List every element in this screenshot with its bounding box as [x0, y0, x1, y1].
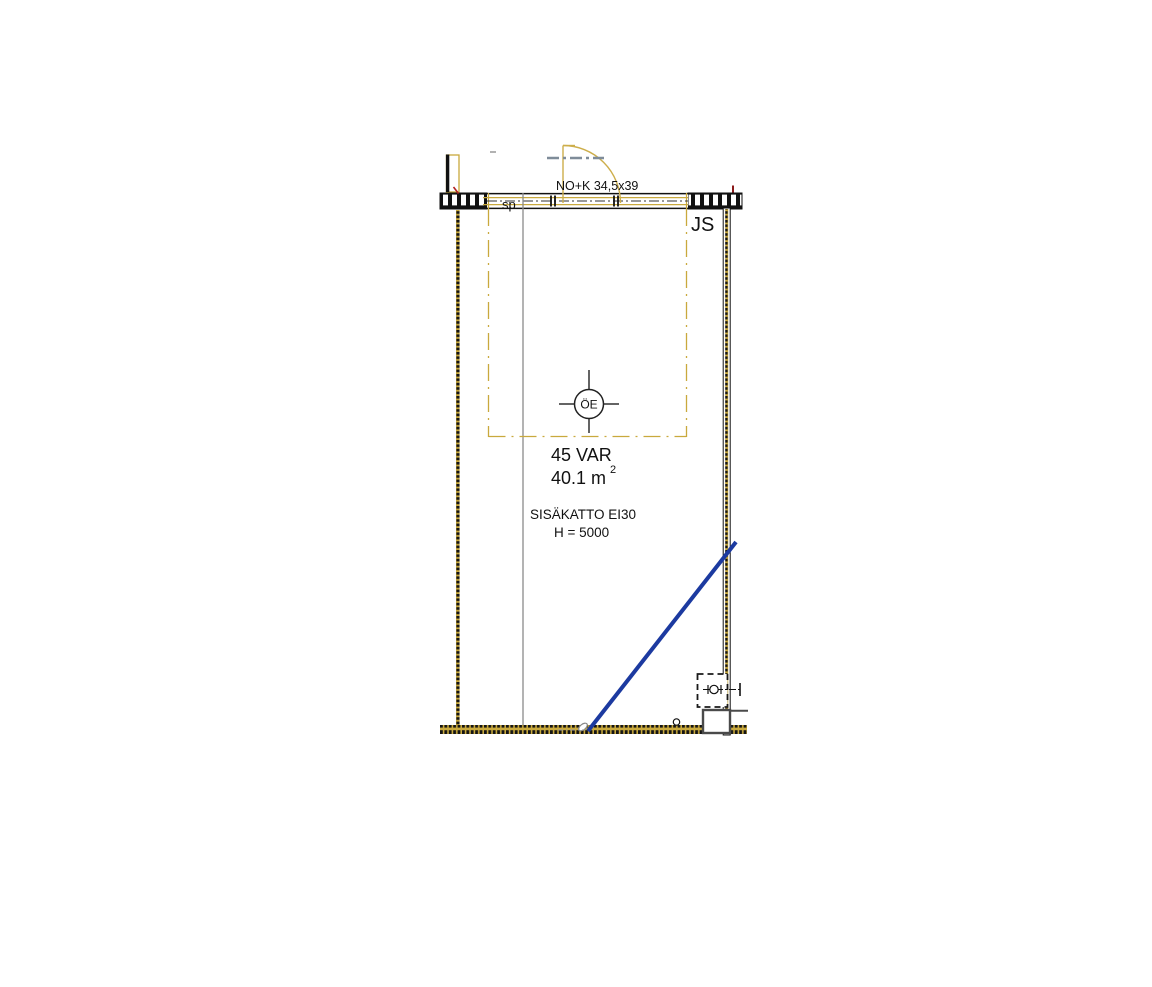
room-number-label: 45 VAR [551, 445, 612, 465]
top-wall-right-segment [688, 193, 742, 209]
floor-plan-drawing: ÖE sp NO+K 34,5x39 JS 45 VAR 40.1 m 2 SI… [0, 0, 1152, 987]
room-area-superscript: 2 [610, 464, 616, 476]
left-wall [456, 210, 460, 726]
service-box-dashed [698, 674, 743, 707]
ceiling-rating-label: SISÄKATTO EI30 [530, 507, 636, 522]
sprinkler-label: sp [502, 197, 516, 212]
room-height-label: H = 5000 [554, 525, 609, 540]
top-wall-left-segment [440, 193, 487, 209]
beam-label: JS [691, 214, 714, 236]
door-type-label: NO+K 34,5x39 [556, 179, 638, 193]
room-text-block: 45 VAR 40.1 m 2 SISÄKATTO EI30 H = 5000 [530, 445, 636, 540]
oe-symbol-label: ÖE [580, 398, 597, 412]
room-area-label: 40.1 m [551, 468, 606, 488]
floor-plan-canvas: ÖE sp NO+K 34,5x39 JS 45 VAR 40.1 m 2 SI… [0, 0, 1152, 987]
oe-symbol: ÖE [559, 370, 619, 433]
floor-drain-circle [673, 719, 679, 725]
right-wall [723, 208, 730, 735]
